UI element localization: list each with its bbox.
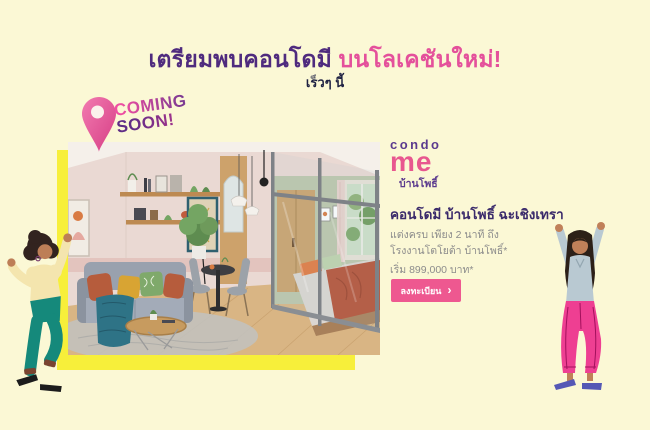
- coming-soon-label: COMING SOON!: [113, 92, 190, 136]
- brand-project-name: บ้านโพธิ์: [390, 179, 442, 190]
- page-subtitle: เร็วๆ นี้: [0, 72, 650, 93]
- room-illustration: [68, 142, 380, 355]
- illustration-cheering-woman-right: [548, 221, 612, 393]
- illustration-dancing-woman-left: [4, 226, 82, 394]
- register-button[interactable]: ลงทะเบียน ›: [391, 279, 461, 302]
- location-pin-icon: [82, 97, 116, 152]
- brand-word-me: me: [390, 148, 442, 176]
- title-accent: บนโลเคชันใหม่!: [339, 46, 502, 72]
- register-button-label: ลงทะเบียน: [401, 284, 442, 298]
- chevron-right-icon: ›: [447, 284, 451, 296]
- brand-logo: condo me บ้านโพธิ์: [390, 138, 442, 190]
- room-photo: [68, 142, 380, 355]
- title-main: เตรียมพบคอนโดมี: [148, 46, 338, 72]
- promo-banner: เตรียมพบคอนโดมี บนโลเคชันใหม่! เร็วๆ นี้: [0, 0, 650, 430]
